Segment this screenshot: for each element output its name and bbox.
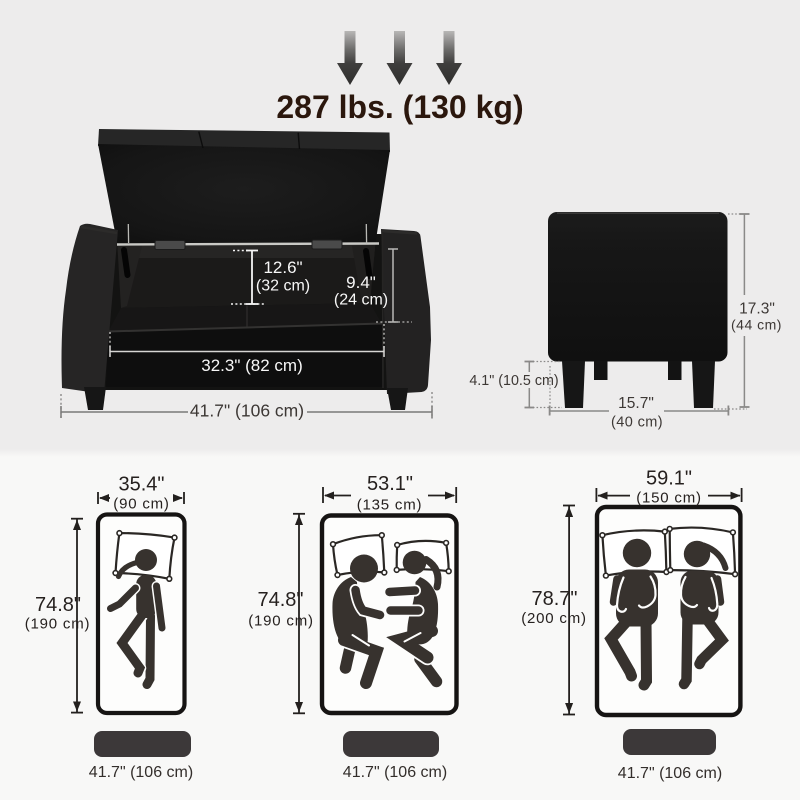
svg-text:41.7" (106 cm): 41.7" (106 cm) [190,401,304,421]
svg-text:(90 cm): (90 cm) [113,496,169,513]
svg-text:41.7" (106 cm): 41.7" (106 cm) [343,764,447,781]
svg-text:(150 cm): (150 cm) [636,490,702,507]
svg-text:78.7": 78.7" [531,588,577,610]
svg-text:(32 cm): (32 cm) [256,278,310,295]
svg-text:59.1": 59.1" [646,468,692,490]
svg-text:(190 cm): (190 cm) [248,613,314,630]
svg-text:32.3" (82 cm): 32.3" (82 cm) [201,356,302,375]
svg-text:74.8": 74.8" [257,589,303,611]
svg-text:(44 cm): (44 cm) [731,317,782,333]
svg-text:53.1": 53.1" [367,473,413,495]
svg-text:(40 cm): (40 cm) [611,415,663,431]
svg-text:(200 cm): (200 cm) [521,610,587,627]
svg-text:41.7" (106 cm): 41.7" (106 cm) [618,765,722,782]
svg-text:(24 cm): (24 cm) [334,292,388,309]
svg-text:41.7" (106 cm): 41.7" (106 cm) [89,764,193,781]
svg-text:12.6": 12.6" [263,258,302,277]
svg-text:35.4": 35.4" [118,474,164,496]
svg-text:15.7": 15.7" [618,395,654,412]
svg-text:287 lbs. (130 kg): 287 lbs. (130 kg) [276,89,523,125]
svg-text:74.8": 74.8" [35,594,81,616]
svg-text:17.3": 17.3" [739,301,775,318]
svg-text:9.4": 9.4" [346,273,376,292]
svg-text:(190 cm): (190 cm) [25,616,91,633]
svg-text:(135 cm): (135 cm) [357,497,423,514]
svg-text:4.1" (10.5 cm): 4.1" (10.5 cm) [469,373,558,389]
